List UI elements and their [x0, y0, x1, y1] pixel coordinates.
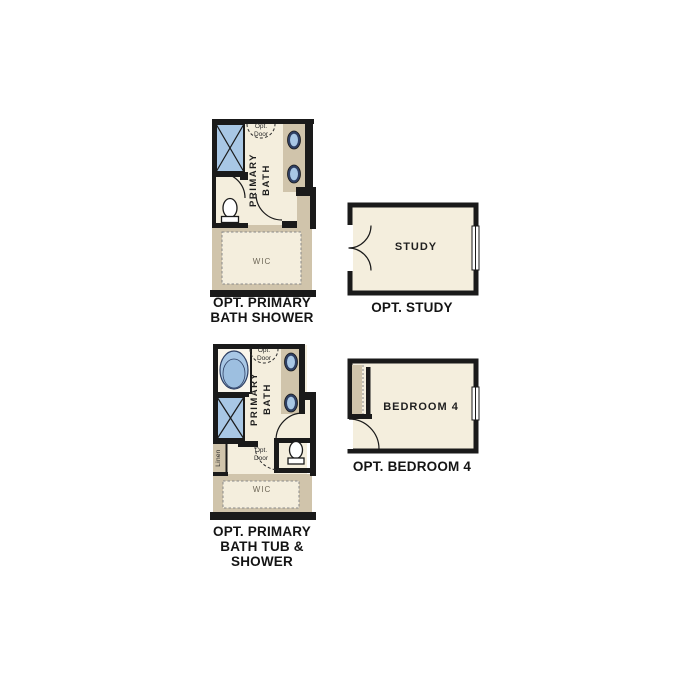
opt-door-label: Opt. Door — [242, 347, 286, 364]
window-symbol — [472, 226, 479, 270]
floorplan-sheet: PRIMARY BATH Opt. Door WIC OPT. PRIMARY … — [0, 0, 687, 687]
wic-label: WIC — [231, 257, 293, 266]
toilet-symbol — [288, 442, 304, 465]
caption-opt-primary-bath-shower: OPT. PRIMARY BATH SHOWER — [189, 295, 335, 325]
sink-symbol — [288, 131, 301, 149]
room-label-study: STUDY — [374, 241, 458, 253]
linen-label: Linen — [215, 440, 225, 476]
room-label-primary-bath: PRIMARY BATH — [249, 352, 277, 446]
window-symbol — [472, 387, 479, 420]
counter-return — [297, 195, 310, 225]
wic-label: WIC — [231, 485, 293, 494]
room-label-primary-bath: PRIMARY BATH — [248, 133, 276, 227]
toilet-symbol — [222, 199, 239, 223]
sink-symbol — [285, 394, 298, 412]
sink-symbol — [288, 165, 301, 183]
opt-door-label: Opt. Door — [239, 447, 283, 464]
sink-symbol — [285, 353, 298, 371]
opt-door-label: Opt. Door — [239, 123, 283, 140]
caption-opt-primary-bath-tub-shower: OPT. PRIMARY BATH TUB & SHOWER — [189, 524, 335, 569]
shower-symbol — [217, 397, 244, 439]
caption-opt-study: OPT. STUDY — [346, 300, 478, 315]
caption-opt-bedroom-4: OPT. BEDROOM 4 — [336, 459, 488, 474]
door-opening — [346, 419, 353, 449]
room-label-bedroom-4: BEDROOM 4 — [369, 401, 473, 413]
